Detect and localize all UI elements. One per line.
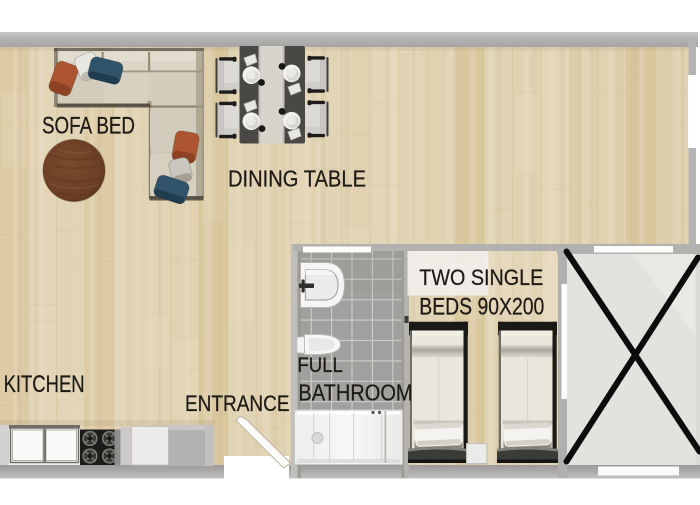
svg-text:FULL: FULL xyxy=(297,352,343,377)
svg-text:TWO SINGLE: TWO SINGLE xyxy=(419,265,543,290)
svg-text:KITCHEN: KITCHEN xyxy=(4,371,85,398)
svg-text:BATHROOM: BATHROOM xyxy=(298,380,412,406)
svg-text:SOFA BED: SOFA BED xyxy=(42,112,135,139)
svg-text:ENTRANCE: ENTRANCE xyxy=(185,391,290,416)
svg-text:DINING TABLE: DINING TABLE xyxy=(228,165,366,191)
svg-text:BEDS 90X200: BEDS 90X200 xyxy=(419,293,544,320)
